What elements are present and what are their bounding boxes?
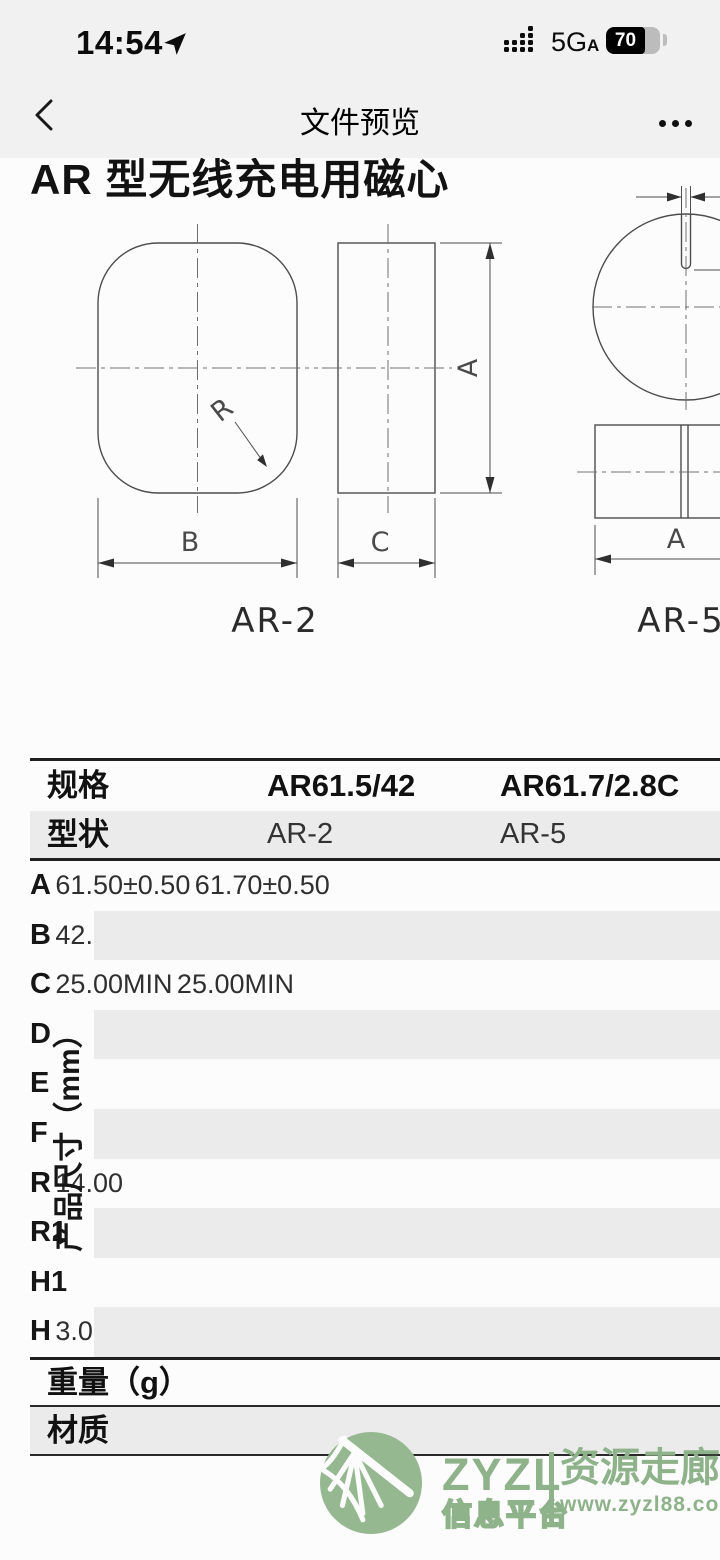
location-arrow-icon	[162, 31, 188, 57]
spec-table: 规格 AR61.5/42 AR61.7/2.8C 型状 AR-2 AR-5 A …	[30, 758, 720, 1456]
more-options-button[interactable]	[659, 120, 692, 127]
table-row-A: A 61.50±0.50 61.70±0.50	[30, 861, 720, 911]
dot-icon	[672, 120, 679, 127]
watermark-divider	[549, 1452, 554, 1526]
cell-value: 61.50±0.50	[55, 870, 190, 900]
shape-label-ar2: AR-2	[231, 601, 318, 641]
table-row-F: F	[30, 1109, 720, 1159]
center-lines	[76, 188, 720, 513]
clock: 14:54	[76, 24, 163, 62]
dim-label-a-bottom: A	[667, 524, 686, 555]
watermark-logo-icon	[320, 1432, 422, 1534]
battery-percent: 70	[606, 27, 645, 54]
table-row-R1: R1	[30, 1208, 720, 1258]
status-bar: 14:54 5GA 70	[0, 0, 720, 70]
spec-value-1: AR61.5/42	[267, 761, 415, 811]
material-label: 材质	[47, 1407, 109, 1454]
ar2-side-outline	[338, 243, 435, 493]
param-label: H	[30, 1315, 51, 1347]
dot-icon	[659, 120, 666, 127]
table-row-R: R 14.00	[30, 1159, 720, 1209]
param-label: C	[30, 968, 51, 1000]
dimension-group-label: 产品尺寸（mm）	[44, 1018, 88, 1251]
watermark-site-name: 资源走廊	[560, 1448, 720, 1488]
table-row-H: H 3.00	[30, 1307, 720, 1357]
dimension-lines	[98, 186, 720, 578]
param-label: B	[30, 919, 51, 951]
table-row-H1: H1	[30, 1258, 720, 1308]
cell-value: 25.00MIN	[177, 969, 294, 999]
cell-value: 3.00	[55, 1316, 108, 1346]
cell-value: 61.70±0.50	[195, 870, 330, 900]
table-row-weight: 重量（g）	[30, 1360, 720, 1407]
watermark-site: 资源走廊 www.zyzl88.com	[560, 1448, 720, 1515]
table-row-D: D	[30, 1010, 720, 1060]
spec-value-2: AR61.7/2.8C	[500, 761, 679, 811]
table-row-E: E	[30, 1059, 720, 1109]
cell-value: 2.80±0.30	[195, 920, 315, 950]
shape-value-2: AR-5	[500, 811, 566, 858]
shape-value-1: AR-2	[267, 811, 333, 858]
cell-value: 42.00±0.40	[55, 920, 190, 950]
param-label: H1	[30, 1266, 67, 1298]
weight-label: 重量（g）	[47, 1360, 190, 1405]
shape-label-ar5: AR-5	[637, 601, 720, 641]
file-preview-document[interactable]: AR 型无线充电用磁心	[0, 0, 720, 1560]
cell-value: 25.00MIN	[55, 969, 172, 999]
table-row-spec: 规格 AR61.5/42 AR61.7/2.8C	[30, 761, 720, 811]
dot-icon	[685, 120, 692, 127]
phone-screen: AR 型无线充电用磁心	[0, 0, 720, 1560]
signal-strength-icon	[504, 26, 542, 52]
table-row-shape: 型状 AR-2 AR-5	[30, 811, 720, 861]
technical-drawing: B C A R A AR-2 AR-5	[0, 170, 720, 650]
param-label: A	[30, 869, 51, 901]
dim-label-b: B	[181, 527, 200, 558]
nav-bar: 文件预览	[0, 70, 720, 158]
table-row-C: C 25.00MIN 25.00MIN	[30, 960, 720, 1010]
network-label: 5GA	[551, 27, 599, 58]
dim-label-c: C	[371, 527, 390, 558]
table-row-B: B 42.00±0.40 2.80±0.30	[30, 911, 720, 961]
dim-label-r: R	[205, 392, 239, 428]
top-bar: 14:54 5GA 70 文件预览	[0, 0, 720, 158]
dim-label-a-side: A	[453, 358, 484, 377]
dimension-rows: A 61.50±0.50 61.70±0.50 B 42.00±0.40 2.8…	[30, 861, 720, 1360]
battery-icon: 70	[606, 27, 660, 54]
page-title: 文件预览	[0, 70, 720, 178]
watermark-url: www.zyzl88.com	[560, 1494, 720, 1515]
shape-label: 型状	[47, 811, 109, 858]
spec-label: 规格	[47, 761, 109, 811]
battery-nub	[663, 34, 667, 46]
